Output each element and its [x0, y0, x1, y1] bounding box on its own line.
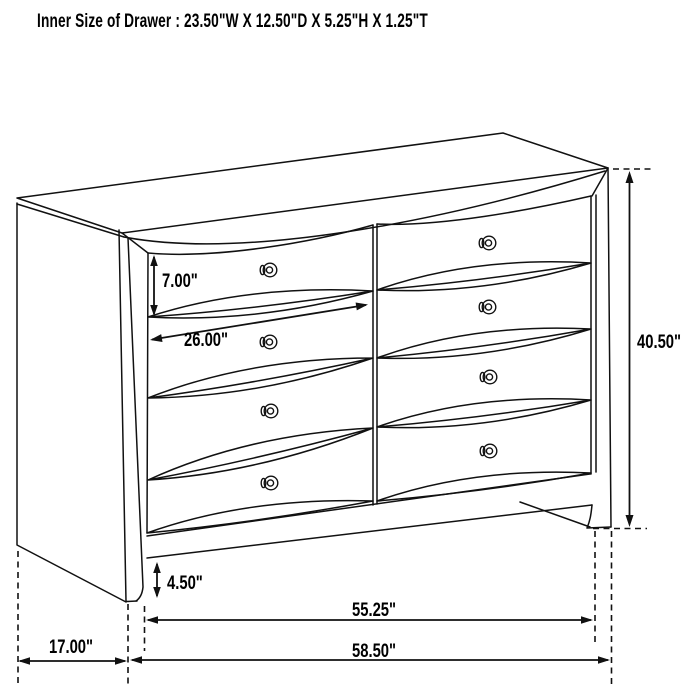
dimension-top-drawer-height: 7.00" — [150, 255, 198, 316]
apron-bottom-line — [147, 505, 592, 558]
arrowhead-up-icon — [626, 171, 634, 183]
dimension-base-clearance: 4.50" — [153, 562, 203, 598]
top-left-bevel — [122, 233, 148, 253]
right-outer-edge — [608, 168, 611, 527]
arrowhead-right-icon — [598, 656, 610, 664]
right-bank-boundary-4 — [377, 472, 591, 501]
dimension-label-side-depth: 17.00" — [49, 636, 93, 657]
right-bank-top-edge — [377, 196, 591, 224]
arrowhead-up-icon — [150, 255, 158, 266]
arrowhead-left-icon — [130, 656, 142, 664]
dimension-label-overall-height: 40.50" — [637, 331, 681, 352]
arrowhead-down-icon — [153, 587, 161, 598]
dimension-feet-span-width: 55.25" — [146, 599, 593, 624]
arrowhead-left-icon — [18, 657, 30, 665]
drawer-eyebrow-mouldings — [147, 262, 591, 533]
dimension-label-overall-width: 58.50" — [352, 640, 396, 661]
right-bank-boundary-2 — [377, 328, 591, 358]
arrowhead-right-icon — [115, 657, 127, 665]
knob — [261, 476, 278, 490]
dimension-label-drawer-front-width: 26.00" — [184, 329, 228, 350]
drawer-knobs — [260, 236, 497, 490]
left-stile-inner-line — [128, 238, 143, 601]
left-bank-top-edge — [148, 225, 373, 254]
knob — [479, 300, 496, 314]
side-top-bevel-line — [17, 204, 124, 237]
drawer-area-left-edge — [147, 253, 148, 533]
cabinet-outline — [17, 133, 611, 602]
knob — [260, 263, 277, 277]
dresser-drawing: 7.00" 26.00" 40.50" 4.50" 55 — [0, 0, 700, 700]
arrowhead-right-icon — [581, 616, 593, 624]
cabinet-top-surface — [17, 133, 608, 233]
side-panel — [17, 203, 126, 602]
right-foot — [587, 505, 611, 528]
knob — [260, 335, 277, 349]
front-left-corner-edge — [119, 230, 126, 601]
dimension-label-feet-span-width: 55.25" — [352, 599, 396, 620]
reference-lines — [18, 169, 654, 686]
arrowhead-left-icon — [146, 616, 158, 624]
knob — [261, 404, 278, 418]
dimension-overall-width: 58.50" — [130, 640, 610, 664]
right-bank-boundary-3 — [377, 399, 591, 428]
left-bank-boundary-1 — [148, 290, 373, 318]
dimension-drawer-front-width: 26.00" — [150, 303, 368, 351]
dimension-label-base-clearance: 4.50" — [167, 572, 203, 593]
left-bank-boundary-2 — [148, 358, 373, 398]
knob — [479, 236, 496, 250]
dresser-dimension-diagram: Inner Size of Drawer : 23.50"W X 12.50"D… — [0, 0, 700, 700]
dimension-overall-height: 40.50" — [626, 171, 682, 527]
dimension-label-top-drawer-height: 7.00" — [162, 270, 198, 291]
left-bank-boundary-3 — [148, 428, 373, 480]
left-bank-boundary-4 — [147, 501, 373, 533]
knob — [480, 444, 497, 458]
knob — [480, 370, 497, 384]
left-foot-bottom — [126, 601, 137, 602]
front-top-bevel-curve — [124, 171, 605, 244]
arrowhead-right-icon — [356, 303, 368, 311]
arrowhead-up-icon — [153, 562, 161, 573]
dimension-side-depth: 17.00" — [18, 636, 127, 665]
arrowhead-down-icon — [626, 515, 634, 527]
right-bank-boundary-1 — [377, 262, 591, 291]
arrowhead-left-icon — [150, 334, 163, 342]
